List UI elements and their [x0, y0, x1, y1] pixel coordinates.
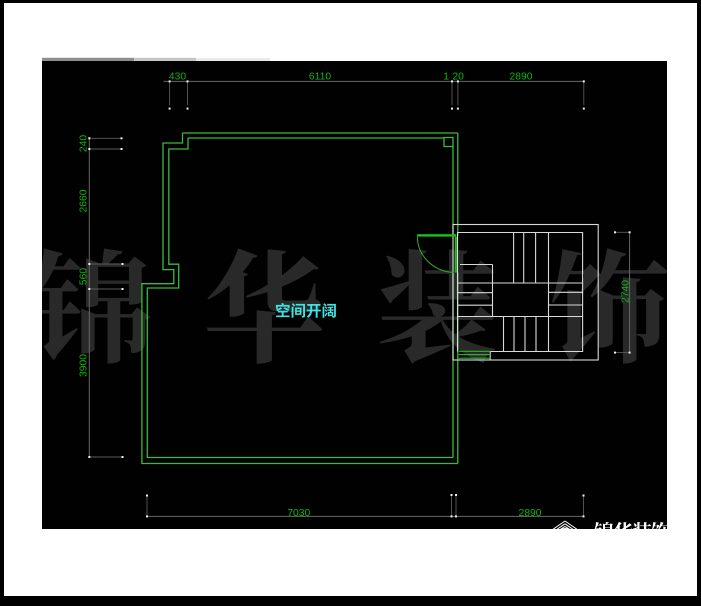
- svg-text:20: 20: [452, 72, 464, 83]
- svg-text:1: 1: [443, 72, 449, 83]
- svg-text:430: 430: [169, 72, 186, 83]
- svg-text:560: 560: [79, 268, 90, 285]
- svg-text:3900: 3900: [79, 354, 90, 377]
- svg-text:7030: 7030: [287, 508, 310, 519]
- svg-text:240: 240: [79, 135, 90, 152]
- svg-text:6110: 6110: [309, 72, 331, 83]
- svg-text:2890: 2890: [519, 508, 542, 519]
- svg-text:2660: 2660: [79, 189, 90, 212]
- svg-text:2740: 2740: [620, 280, 631, 303]
- svg-text:2890: 2890: [510, 72, 533, 83]
